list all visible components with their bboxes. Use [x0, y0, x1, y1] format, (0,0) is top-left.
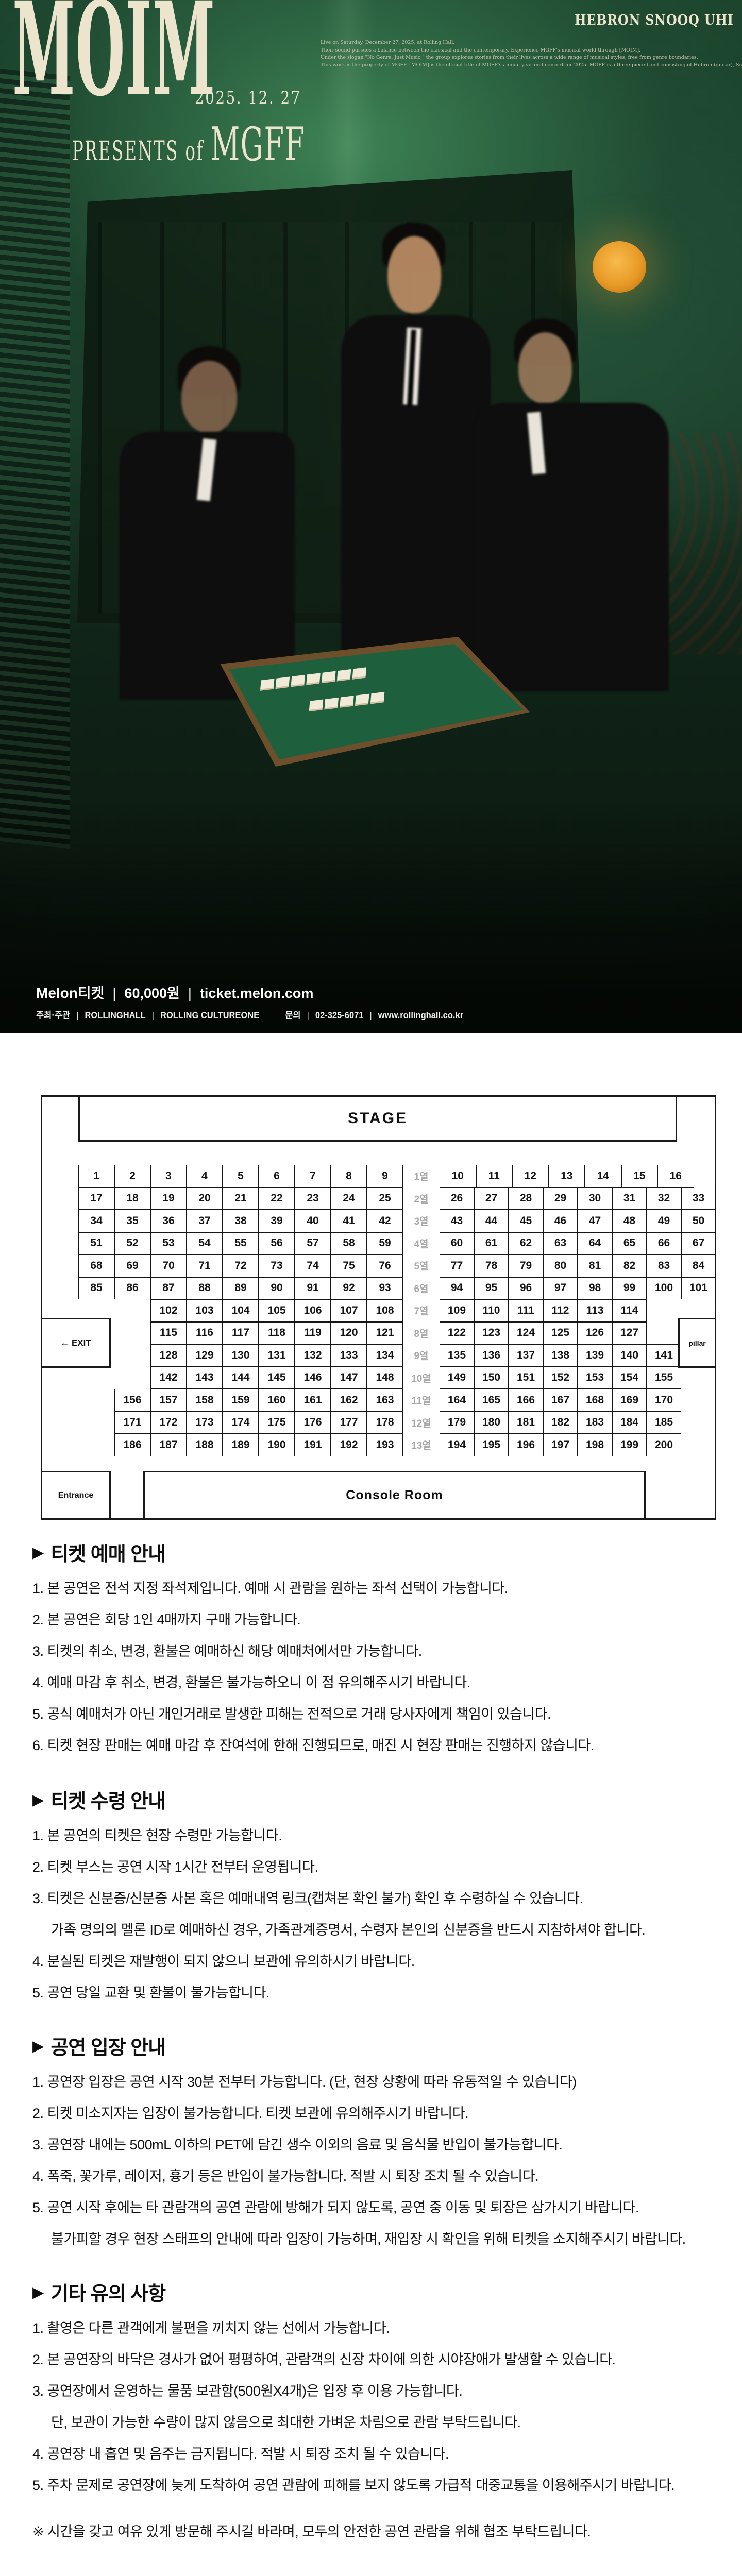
seat-cell: 46 — [543, 1210, 578, 1232]
seat-cell: 90 — [259, 1277, 295, 1300]
notice-item: 단, 보관이 가능한 수량이 많지 않음으로 최대한 가벼운 차림으로 관람 부… — [32, 2414, 718, 2431]
ticket-price: 60,000원 — [124, 982, 179, 1002]
seat-cell: 121 — [367, 1322, 403, 1345]
section-title: ▶공연 입장 안내 — [32, 2031, 718, 2060]
notice-item: 4. 예매 마감 후 취소, 변경, 환불은 불가능하오니 이 점 유의해주시기… — [32, 1674, 718, 1691]
seat-cell: 88 — [187, 1277, 223, 1300]
seat-cell: 193 — [367, 1434, 403, 1456]
ticket-info-bar: Melon티켓 | 60,000원 | ticket.melon.com — [36, 982, 313, 1003]
poster-band-name: MGFF — [210, 117, 305, 172]
seat-cell: 92 — [331, 1277, 367, 1300]
seat-cell: 168 — [578, 1389, 612, 1412]
row-label: 12열 — [403, 1412, 440, 1434]
venue-homepage-url: www.rollinghall.co.kr — [378, 1011, 463, 1021]
seat-cell: 197 — [543, 1434, 578, 1456]
seat-cell: 159 — [223, 1389, 259, 1412]
seat-cell: 157 — [150, 1389, 187, 1412]
seat-cell: 47 — [578, 1210, 612, 1232]
seat-cell: 61 — [474, 1232, 509, 1255]
seat-cell: 166 — [509, 1389, 543, 1412]
seat-cell: 125 — [543, 1322, 578, 1345]
notice-section: ▶티켓 예매 안내1. 본 공연은 전석 지정 좌석제입니다. 예매 시 관람을… — [32, 1538, 718, 1754]
seat-cell: 69 — [114, 1255, 150, 1277]
notice-section: ▶기타 유의 사항1. 촬영은 다른 관객에게 불편을 끼치지 않는 선에서 가… — [32, 2278, 718, 2540]
seat-cell: 4 — [187, 1165, 223, 1188]
row-label: 2열 — [403, 1188, 440, 1210]
seat-cell: 45 — [509, 1210, 543, 1232]
row-label: 9열 — [403, 1344, 440, 1367]
seat-cell: 133 — [331, 1344, 367, 1367]
seat-cell: 176 — [295, 1412, 331, 1434]
seat-cell: 114 — [612, 1299, 647, 1322]
seat-cell: 189 — [223, 1434, 259, 1456]
seat-cell: 60 — [440, 1232, 474, 1255]
notice-footnote: ※ 시간을 갖고 여유 있게 방문해 주시길 바라며, 모두의 안전한 공연 관… — [32, 2523, 718, 2540]
seat-cell: 26 — [440, 1188, 474, 1210]
seat-cell: 115 — [150, 1322, 187, 1345]
notice-item: 1. 본 공연은 전석 지정 좌석제입니다. 예매 시 관람을 원하는 좌석 선… — [32, 1580, 718, 1597]
seat-cell: 167 — [543, 1389, 578, 1412]
row-label: 6열 — [403, 1277, 440, 1300]
pillar-box: pillar — [678, 1318, 716, 1368]
notice-item: 3. 공연장 내에는 500mL 이하의 PET에 담긴 생수 이외의 음료 및… — [32, 2136, 718, 2154]
seat-cell: 102 — [150, 1299, 187, 1322]
seat-cell: 78 — [474, 1255, 509, 1277]
seat-cell: 95 — [474, 1277, 509, 1300]
notice-item: 4. 폭죽, 꽃가루, 레이저, 흉기 등은 반입이 불가능합니다. 적발 시 … — [32, 2167, 718, 2185]
seat-cell: 109 — [440, 1299, 474, 1322]
section-marker-icon: ▶ — [32, 2037, 43, 2055]
concert-poster: MOIM 2025. 12. 27 PRESENTS of MGFF HEBRO… — [0, 0, 742, 1033]
seat-cell: 73 — [259, 1255, 295, 1277]
separator: | — [307, 1011, 309, 1021]
inquiry-phone: 02-325-6071 — [315, 1011, 364, 1021]
seat-cell: 152 — [543, 1367, 578, 1389]
seat-cell: 186 — [114, 1434, 150, 1456]
seat-cell: 194 — [440, 1434, 474, 1456]
host-name-2: ROLLING CULTUREONE — [160, 1011, 259, 1021]
seat-cell: 57 — [295, 1232, 331, 1255]
seat-cell: 39 — [259, 1210, 295, 1232]
seat-cell: 77 — [440, 1255, 474, 1277]
seat-cell: 54 — [187, 1232, 223, 1255]
seat-cell: 129 — [187, 1344, 223, 1367]
poster-title: MOIM — [12, 0, 215, 113]
notice-item: 1. 본 공연의 티켓은 현장 수령만 가능합니다. — [32, 1827, 718, 1844]
seat-cell: 169 — [612, 1389, 647, 1412]
seat-cell: 126 — [578, 1322, 612, 1345]
seat-cell: 100 — [647, 1277, 681, 1300]
notice-item: 불가피할 경우 현장 스태프의 안내에 따라 입장이 가능하며, 재입장 시 확… — [32, 2230, 718, 2248]
seat-cell: 10 — [440, 1165, 476, 1188]
seat-cell: 42 — [367, 1210, 403, 1232]
exit-box: ← EXIT — [41, 1318, 111, 1368]
row-label: 10열 — [403, 1367, 440, 1389]
seat-cell: 65 — [612, 1232, 647, 1255]
seat-cell: 11 — [476, 1165, 513, 1188]
seat-cell: 84 — [681, 1255, 716, 1277]
notice-item: 5. 공식 예매처가 아닌 개인거래로 발생한 피해는 전적으로 거래 당사자에… — [32, 1705, 718, 1723]
entrance-box: Entrance — [41, 1471, 111, 1520]
seat-cell: 164 — [440, 1389, 474, 1412]
seat-cell: 8 — [331, 1165, 367, 1188]
row-label: 1열 — [403, 1165, 440, 1188]
seat-cell: 94 — [440, 1277, 474, 1300]
seat-cell: 160 — [259, 1389, 295, 1412]
seat-cell: 170 — [647, 1389, 681, 1412]
row-label: 7열 — [403, 1299, 440, 1322]
notice-item: 5. 공연 시작 후에는 타 관람객의 공연 관람에 방해가 되지 않도록, 공… — [32, 2199, 718, 2216]
seat-cell: 49 — [647, 1210, 681, 1232]
section-marker-icon: ▶ — [32, 1544, 43, 1562]
seat-cell: 180 — [474, 1412, 509, 1434]
seat-cell: 33 — [681, 1188, 716, 1210]
seat-cell: 72 — [223, 1255, 259, 1277]
seat-cell: 97 — [543, 1277, 578, 1300]
seat-cell: 136 — [474, 1344, 509, 1367]
seat-cell: 80 — [543, 1255, 578, 1277]
seat-cell: 48 — [612, 1210, 647, 1232]
seat-cell: 120 — [331, 1322, 367, 1345]
seat-cell: 71 — [187, 1255, 223, 1277]
seat-cell: 127 — [612, 1322, 647, 1345]
seat-cell: 40 — [295, 1210, 331, 1232]
seat-cell: 119 — [295, 1322, 331, 1345]
seat-cell: 52 — [114, 1232, 150, 1255]
seat-cell: 181 — [509, 1412, 543, 1434]
seat-cell: 140 — [612, 1344, 647, 1367]
seat-cell: 67 — [681, 1232, 716, 1255]
notice-section: ▶티켓 수령 안내1. 본 공연의 티켓은 현장 수령만 가능합니다.2. 티켓… — [32, 1785, 718, 2002]
seat-cell: 113 — [578, 1299, 612, 1322]
ticket-detail-page: MOIM 2025. 12. 27 PRESENTS of MGFF HEBRO… — [0, 0, 742, 2576]
seat-cell: 19 — [150, 1188, 187, 1210]
section-title: ▶티켓 예매 안내 — [32, 1538, 718, 1566]
notice-item: 1. 촬영은 다른 관객에게 불편을 끼치지 않는 선에서 가능합니다. — [32, 2319, 718, 2337]
seat-cell: 149 — [440, 1367, 474, 1389]
seat-cell: 141 — [647, 1344, 681, 1367]
seat-cell: 96 — [509, 1277, 543, 1300]
notice-item: 5. 공연 당일 교환 및 환불이 불가능합니다. — [32, 1984, 718, 2002]
seat-cell: 131 — [259, 1344, 295, 1367]
seat-cell: 81 — [578, 1255, 612, 1277]
seat-cell: 13 — [549, 1165, 585, 1188]
seat-cell: 122 — [440, 1322, 474, 1345]
seat-cell: 163 — [367, 1389, 403, 1412]
seat-cell: 130 — [223, 1344, 259, 1367]
seat-cell: 21 — [223, 1188, 259, 1210]
notice-item: 가족 명의의 멜론 ID로 예매하신 경우, 가족관계증명서, 수령자 본인의 … — [32, 1921, 718, 1939]
seat-cell: 68 — [78, 1255, 114, 1277]
seat-cell: 105 — [259, 1299, 295, 1322]
seat-cell: 174 — [223, 1412, 259, 1434]
notice-item: 2. 티켓 부스는 공연 시작 1시간 전부터 운영됩니다. — [32, 1858, 718, 1876]
seat-cell: 183 — [578, 1412, 612, 1434]
notice-item: 2. 본 공연장의 바닥은 경사가 없어 평평하여, 관람객의 신장 차이에 의… — [32, 2351, 718, 2368]
seat-cell: 51 — [78, 1232, 114, 1255]
notice-item: 2. 본 공연은 회당 1인 4매까지 구매 가능합니다. — [32, 1611, 718, 1629]
notice-item: 1. 공연장 입장은 공연 시작 30분 전부터 가능합니다. (단, 현장 상… — [32, 2073, 718, 2091]
seat-cell: 35 — [114, 1210, 150, 1232]
seat-cell: 137 — [509, 1344, 543, 1367]
section-title: ▶티켓 수령 안내 — [32, 1785, 718, 1814]
seat-cell: 116 — [187, 1322, 223, 1345]
seat-cell: 110 — [474, 1299, 509, 1322]
notice-item: 2. 티켓 미소지자는 입장이 불가능합니다. 티켓 보관에 유의해주시기 바랍… — [32, 2105, 718, 2122]
stage-area: STAGE — [78, 1095, 677, 1142]
seat-cell: 179 — [440, 1412, 474, 1434]
seat-cell: 111 — [509, 1299, 543, 1322]
seat-cell: 98 — [578, 1277, 612, 1300]
seat-cell: 86 — [114, 1277, 150, 1300]
seat-cell: 93 — [367, 1277, 403, 1300]
seat-cell: 31 — [612, 1188, 647, 1210]
seat-cell: 22 — [259, 1188, 295, 1210]
seat-cell: 156 — [114, 1389, 150, 1412]
notice-item: 4. 분실된 티켓은 재발행이 되지 않으니 보관에 유의하시기 바랍니다. — [32, 1953, 718, 1970]
notice-item: 5. 주차 문제로 공연장에 늦게 도착하여 공연 관람에 피해를 보지 않도록… — [32, 2477, 718, 2494]
seat-cell: 123 — [474, 1322, 509, 1345]
seat-cell: 150 — [474, 1367, 509, 1389]
notice-section: ▶공연 입장 안내1. 공연장 입장은 공연 시작 30분 전부터 가능합니다.… — [32, 2031, 718, 2248]
seat-cell: 75 — [331, 1255, 367, 1277]
seat-cell: 28 — [509, 1188, 543, 1210]
seat-cell: 153 — [578, 1367, 612, 1389]
seat-cell: 23 — [295, 1188, 331, 1210]
seat-cell: 124 — [509, 1322, 543, 1345]
seat-cell: 155 — [647, 1367, 681, 1389]
host-name: ROLLINGHALL — [85, 1011, 146, 1021]
ticket-vendor: Melon티켓 — [36, 982, 104, 1003]
seat-cell: 142 — [150, 1367, 187, 1389]
seat-cell: 36 — [150, 1210, 187, 1232]
seat-cell: 63 — [543, 1232, 578, 1255]
seat-cell: 147 — [331, 1367, 367, 1389]
blurb-line: Under the slogan "No Genre, Just Music,"… — [321, 54, 742, 62]
seat-cell: 178 — [367, 1412, 403, 1434]
seat-cell: 143 — [187, 1367, 223, 1389]
seat-cell: 128 — [150, 1344, 187, 1367]
seat-cell: 43 — [440, 1210, 474, 1232]
seat-cell: 135 — [440, 1344, 474, 1367]
seat-cell: 171 — [114, 1412, 150, 1434]
ticket-site-url: ticket.melon.com — [200, 986, 314, 1002]
poster-presents-label: PRESENTS of — [72, 136, 204, 167]
row-label: 8열 — [403, 1322, 440, 1345]
separator: | — [112, 986, 116, 1002]
seat-cell: 50 — [681, 1210, 716, 1232]
poster-artist-names: HEBRON SNOOQ UHI — [575, 12, 734, 28]
seat-cell: 29 — [543, 1188, 578, 1210]
seat-cell: 20 — [187, 1188, 223, 1210]
separator: | — [152, 1011, 154, 1021]
seat-cell: 172 — [150, 1412, 187, 1434]
separator: | — [188, 986, 192, 1002]
seat-cell: 144 — [223, 1367, 259, 1389]
seat-cell: 132 — [295, 1344, 331, 1367]
seat-cell: 184 — [612, 1412, 647, 1434]
seat-cell: 190 — [259, 1434, 295, 1456]
notice-item: 6. 티켓 현장 판매는 예매 마감 후 잔여석에 한해 진행되므로, 매진 시… — [32, 1737, 718, 1754]
console-room-box: Console Room — [143, 1471, 646, 1520]
seat-cell: 198 — [578, 1434, 612, 1456]
row-label: 13열 — [403, 1434, 440, 1456]
seat-cell: 1 — [78, 1165, 114, 1188]
seat-cell: 108 — [367, 1299, 403, 1322]
seat-cell: 104 — [223, 1299, 259, 1322]
seat-cell: 151 — [509, 1367, 543, 1389]
seat-cell: 99 — [612, 1277, 647, 1300]
seating-chart: STAGE 1234567891열10111213141516171819202… — [41, 1095, 716, 1520]
blurb-line: This work is the property of MGFF. [MOIM… — [321, 62, 742, 70]
seat-cell: 148 — [367, 1367, 403, 1389]
seat-cell: 196 — [509, 1434, 543, 1456]
seat-cell: 2 — [114, 1165, 150, 1188]
separator: | — [76, 1011, 78, 1021]
seat-cell: 191 — [295, 1434, 331, 1456]
seat-cell: 85 — [78, 1277, 114, 1300]
seat-cell: 161 — [295, 1389, 331, 1412]
seat-cell: 70 — [150, 1255, 187, 1277]
seat-cell: 200 — [647, 1434, 681, 1456]
separator: | — [369, 1011, 372, 1021]
seat-cell: 106 — [295, 1299, 331, 1322]
seat-cell: 76 — [367, 1255, 403, 1277]
seat-cell: 134 — [367, 1344, 403, 1367]
blurb-line: Live on Saturday, December 27, 2025, at … — [321, 39, 742, 47]
seat-cell: 118 — [259, 1322, 295, 1345]
seat-cell: 87 — [150, 1277, 187, 1300]
seat-cell: 55 — [223, 1232, 259, 1255]
seat-cell: 25 — [367, 1188, 403, 1210]
notice-item: 3. 티켓은 신분증/신분증 사본 혹은 예매내역 링크(캡쳐본 확인 불가) … — [32, 1890, 718, 1907]
seat-cell: 62 — [509, 1232, 543, 1255]
seat-cell: 175 — [259, 1412, 295, 1434]
notice-item: 3. 티켓의 취소, 변경, 환불은 예매하신 해당 예매처에서만 가능합니다. — [32, 1642, 718, 1660]
poster-date: 2025. 12. 27 — [195, 88, 301, 108]
seat-cell: 192 — [331, 1434, 367, 1456]
seat-cell: 41 — [331, 1210, 367, 1232]
seat-cell: 32 — [647, 1188, 681, 1210]
seat-cell: 9 — [367, 1165, 403, 1188]
seat-cell: 117 — [223, 1322, 259, 1345]
seat-cell: 37 — [187, 1210, 223, 1232]
row-label: 5열 — [403, 1255, 440, 1277]
seat-cell: 38 — [223, 1210, 259, 1232]
seat-cell: 44 — [474, 1210, 509, 1232]
seat-cell: 14 — [585, 1165, 621, 1188]
seat-cell: 53 — [150, 1232, 187, 1255]
poster-description: Live on Saturday, December 27, 2025, at … — [321, 39, 742, 69]
section-marker-icon: ▶ — [32, 2283, 43, 2301]
seat-cell: 16 — [657, 1165, 694, 1188]
notice-item: 4. 공연장 내 흡연 및 음주는 금지됩니다. 적발 시 퇴장 조치 될 수 … — [32, 2445, 718, 2463]
seat-cell: 187 — [150, 1434, 187, 1456]
seat-cell: 7 — [295, 1165, 331, 1188]
seat-cell: 24 — [331, 1188, 367, 1210]
seat-cell: 165 — [474, 1389, 509, 1412]
seat-cell: 58 — [331, 1232, 367, 1255]
host-label: 주최·주관 — [36, 1008, 70, 1021]
seat-cell: 173 — [187, 1412, 223, 1434]
seat-cell: 34 — [78, 1210, 114, 1232]
seat-cell: 82 — [612, 1255, 647, 1277]
seat-cell: 30 — [578, 1188, 612, 1210]
row-label: 4열 — [403, 1232, 440, 1255]
seat-cell: 17 — [78, 1188, 114, 1210]
seat-cell: 185 — [647, 1412, 681, 1434]
seat-cell: 89 — [223, 1277, 259, 1300]
seat-cell: 18 — [114, 1188, 150, 1210]
seat-cell: 107 — [331, 1299, 367, 1322]
seat-cell: 199 — [612, 1434, 647, 1456]
seat-cell: 83 — [647, 1255, 681, 1277]
notice-item: 3. 공연장에서 운영하는 물품 보관함(500원X4개)은 입장 후 이용 가… — [32, 2382, 718, 2400]
organizer-bar: 주최·주관 | ROLLINGHALL | ROLLING CULTUREONE… — [36, 1008, 463, 1021]
section-title: ▶기타 유의 사항 — [32, 2278, 718, 2306]
seat-cell: 188 — [187, 1434, 223, 1456]
seat-cell: 59 — [367, 1232, 403, 1255]
row-label: 3열 — [403, 1210, 440, 1232]
section-marker-icon: ▶ — [32, 1791, 43, 1809]
seat-cell: 154 — [612, 1367, 647, 1389]
seat-cell: 56 — [259, 1232, 295, 1255]
seat-cell: 27 — [474, 1188, 509, 1210]
seat-cell: 146 — [295, 1367, 331, 1389]
seat-cell: 177 — [331, 1412, 367, 1434]
seat-cell: 158 — [187, 1389, 223, 1412]
seat-cell: 103 — [187, 1299, 223, 1322]
inquiry-label: 문의 — [285, 1008, 300, 1021]
seat-cell: 79 — [509, 1255, 543, 1277]
seat-cell: 64 — [578, 1232, 612, 1255]
seat-cell: 74 — [295, 1255, 331, 1277]
seat-cell: 3 — [150, 1165, 187, 1188]
seat-cell: 139 — [578, 1344, 612, 1367]
seat-cell: 138 — [543, 1344, 578, 1367]
seat-cell: 15 — [621, 1165, 658, 1188]
seat-cell: 12 — [512, 1165, 549, 1188]
seat-cell: 6 — [259, 1165, 295, 1188]
seat-cell: 101 — [681, 1277, 716, 1300]
seat-cell: 182 — [543, 1412, 578, 1434]
seat-cell: 5 — [223, 1165, 259, 1188]
seat-cell: 91 — [295, 1277, 331, 1300]
seat-cell: 66 — [647, 1232, 681, 1255]
seat-cell: 162 — [331, 1389, 367, 1412]
seat-cell: 195 — [474, 1434, 509, 1456]
seat-cell: 145 — [259, 1367, 295, 1389]
blurb-line: Their sound pursues a balance between th… — [321, 47, 742, 55]
row-label: 11열 — [403, 1389, 440, 1412]
seat-cell: 112 — [543, 1299, 578, 1322]
